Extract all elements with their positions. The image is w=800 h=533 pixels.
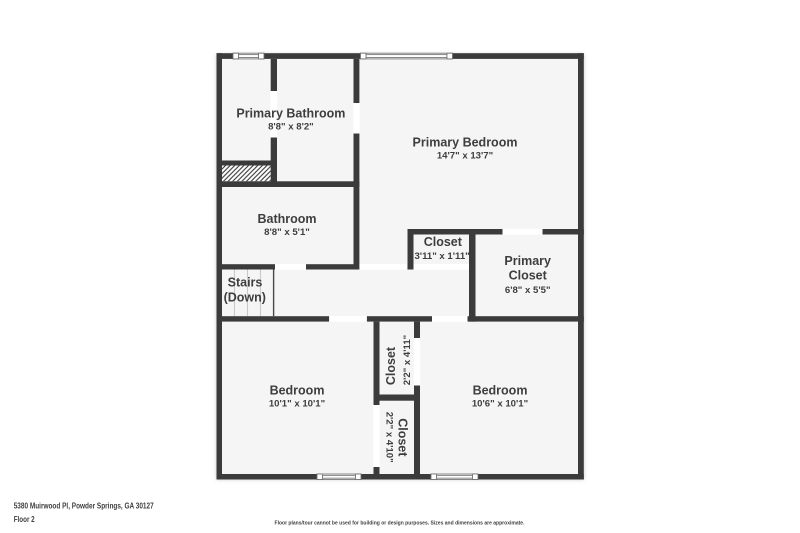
svg-text:(Down): (Down)	[224, 291, 266, 305]
svg-text:Closet: Closet	[396, 418, 410, 457]
svg-text:10'1" x 10'1": 10'1" x 10'1"	[269, 399, 325, 410]
svg-text:Primary: Primary	[504, 254, 551, 268]
svg-text:5380 Muirwood Pl, Powder Sprin: 5380 Muirwood Pl, Powder Springs, GA 301…	[14, 501, 154, 510]
svg-text:Closet: Closet	[424, 235, 463, 249]
svg-text:Bedroom: Bedroom	[473, 384, 528, 398]
svg-text:Stairs: Stairs	[228, 276, 263, 290]
svg-text:Floor 2: Floor 2	[14, 515, 35, 524]
svg-text:Primary Bathroom: Primary Bathroom	[236, 107, 345, 121]
svg-text:Primary Bedroom: Primary Bedroom	[413, 135, 518, 149]
svg-text:14'7" x 13'7": 14'7" x 13'7"	[437, 151, 493, 162]
svg-text:8'8" x 8'2": 8'8" x 8'2"	[268, 121, 314, 132]
svg-text:10'6" x 10'1": 10'6" x 10'1"	[472, 399, 528, 410]
svg-text:2'2" x 4'10": 2'2" x 4'10"	[384, 412, 395, 463]
svg-text:Floor plans/tour cannot be use: Floor plans/tour cannot be used for buil…	[275, 520, 526, 526]
svg-text:3'11" x 1'11": 3'11" x 1'11"	[414, 251, 469, 262]
svg-text:Bathroom: Bathroom	[257, 212, 316, 226]
svg-text:Closet: Closet	[509, 269, 548, 283]
svg-text:Closet: Closet	[384, 346, 398, 385]
svg-text:Bedroom: Bedroom	[270, 384, 325, 398]
svg-text:8'8" x 5'1": 8'8" x 5'1"	[264, 227, 310, 238]
svg-text:2'2" x 4'11": 2'2" x 4'11"	[402, 335, 413, 385]
svg-text:6'8" x 5'5": 6'8" x 5'5"	[505, 285, 551, 296]
